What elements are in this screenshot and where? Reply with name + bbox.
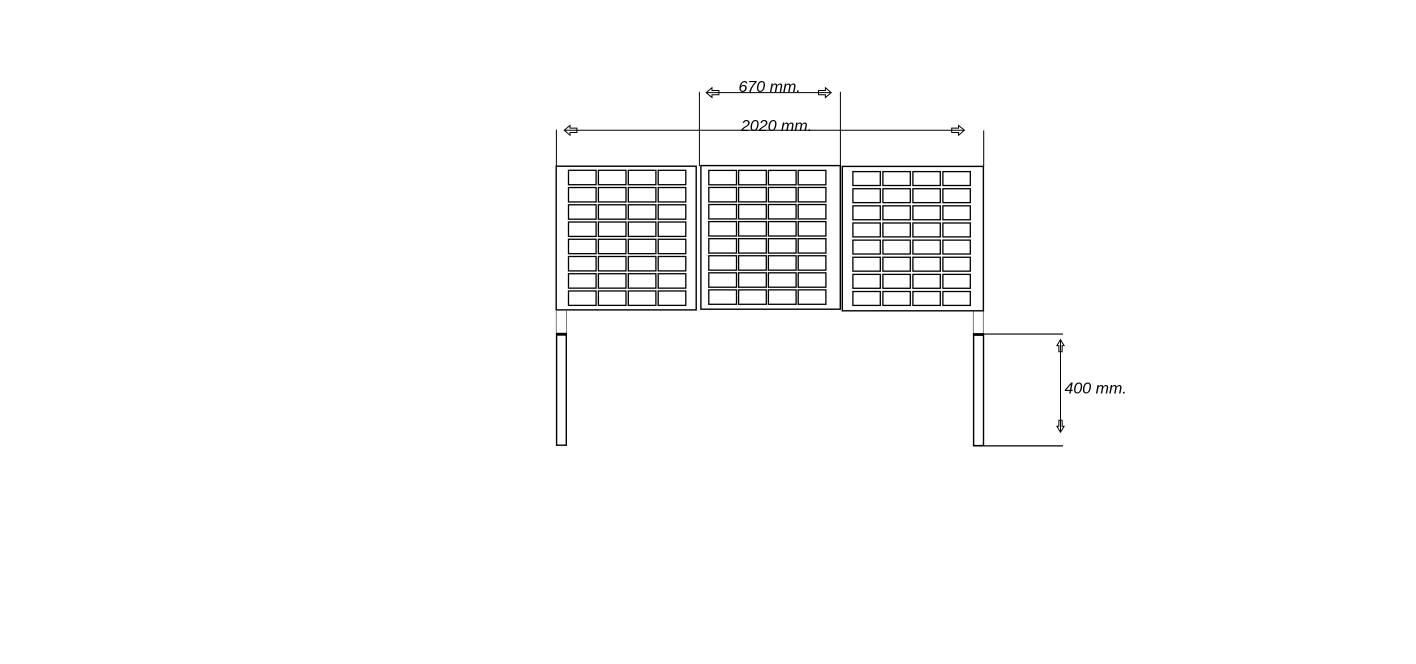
svg-text:400 mm.: 400 mm. (1065, 381, 1127, 398)
svg-text:670 mm.: 670 mm. (739, 79, 801, 96)
svg-text:2020 mm.: 2020 mm. (740, 118, 812, 135)
